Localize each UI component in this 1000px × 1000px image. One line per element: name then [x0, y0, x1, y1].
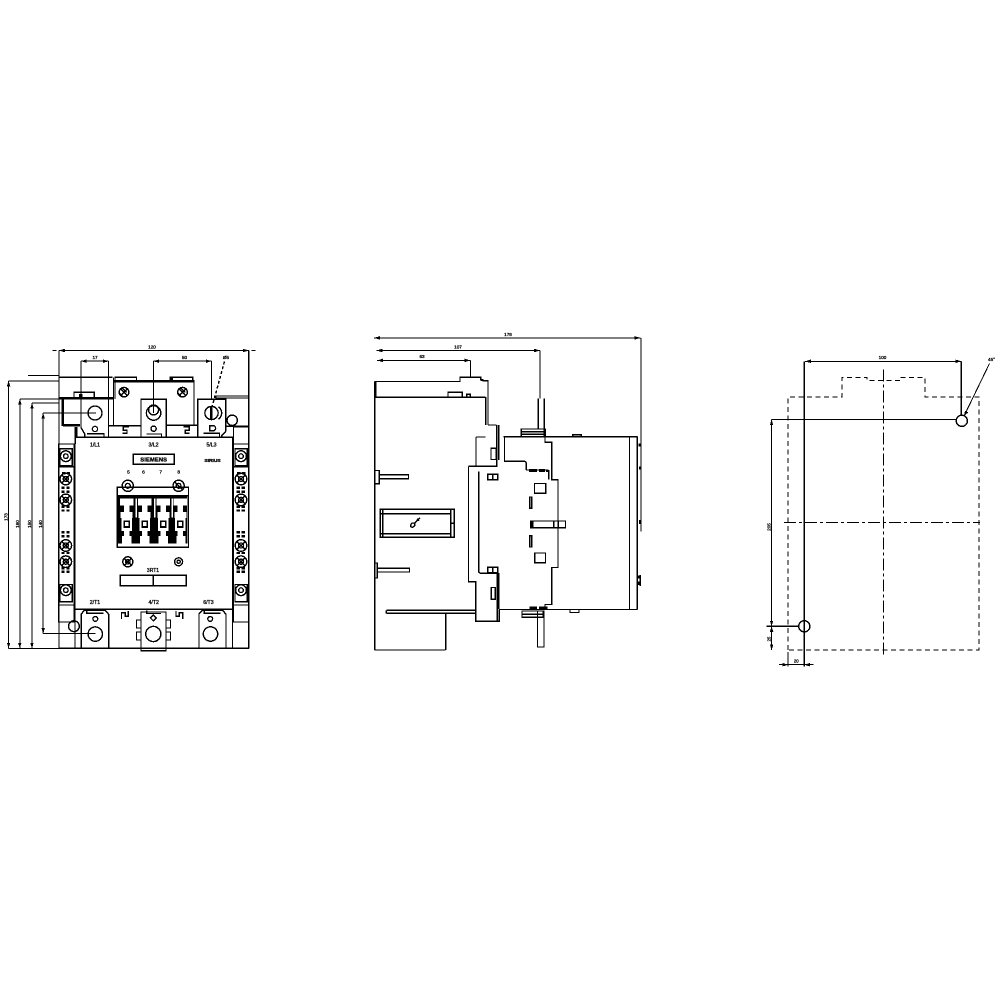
svg-text:7: 7 [159, 470, 162, 476]
svg-text:100: 100 [879, 355, 887, 360]
svg-text:63: 63 [419, 354, 425, 359]
svg-text:120: 120 [148, 344, 156, 349]
svg-text:160: 160 [15, 520, 20, 528]
svg-text:Ø5: Ø5 [223, 355, 230, 360]
svg-text:SIEMENS: SIEMENS [140, 458, 167, 464]
svg-text:140: 140 [38, 520, 43, 528]
svg-text:4/T2: 4/T2 [149, 600, 159, 606]
svg-text:205: 205 [766, 523, 771, 531]
svg-text:178: 178 [504, 332, 512, 337]
svg-text:6: 6 [142, 470, 145, 476]
svg-text:1/L1: 1/L1 [90, 443, 100, 449]
svg-text:150: 150 [27, 520, 32, 528]
svg-text:8: 8 [177, 470, 180, 476]
svg-text:25: 25 [766, 636, 771, 641]
svg-text:5: 5 [127, 470, 130, 476]
svg-text:3/L2: 3/L2 [148, 443, 158, 449]
svg-text:5/L3: 5/L3 [206, 443, 216, 449]
svg-text:107: 107 [454, 344, 462, 349]
svg-text:20: 20 [794, 659, 799, 664]
svg-text:6/T3: 6/T3 [203, 600, 213, 606]
svg-text:2/T1: 2/T1 [90, 600, 100, 606]
svg-text:3RT1: 3RT1 [147, 568, 159, 574]
svg-text:17: 17 [92, 355, 98, 360]
svg-text:50: 50 [182, 355, 188, 360]
svg-text:45°: 45° [988, 357, 995, 362]
svg-text:SIRIUS: SIRIUS [204, 458, 221, 464]
svg-text:173: 173 [4, 513, 9, 521]
